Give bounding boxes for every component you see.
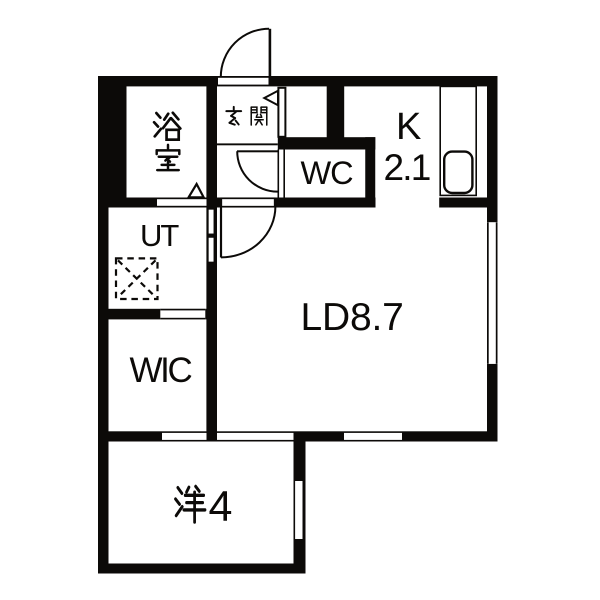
svg-text:K: K bbox=[396, 106, 421, 148]
svg-text:LD8.7: LD8.7 bbox=[301, 296, 404, 339]
svg-text:WIC: WIC bbox=[130, 351, 192, 390]
svg-text:WC: WC bbox=[301, 155, 354, 191]
svg-text:UT: UT bbox=[140, 218, 179, 253]
svg-text:2.1: 2.1 bbox=[384, 147, 430, 188]
svg-text:4: 4 bbox=[209, 483, 233, 531]
